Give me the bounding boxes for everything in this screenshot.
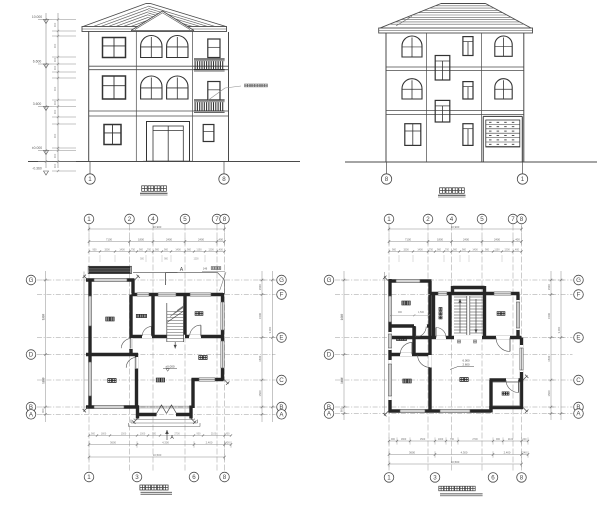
svg-text:C: C xyxy=(576,377,581,384)
svg-text:E: E xyxy=(576,335,580,342)
svg-text:4,300: 4,300 xyxy=(461,450,468,454)
svg-text:3600: 3600 xyxy=(110,440,116,444)
svg-text:900: 900 xyxy=(496,438,501,441)
svg-text:900: 900 xyxy=(453,248,458,251)
svg-text:4,300: 4,300 xyxy=(162,440,169,444)
svg-text:6: 6 xyxy=(491,475,495,482)
svg-text:5: 5 xyxy=(183,216,187,223)
svg-text:1000: 1000 xyxy=(140,432,146,435)
svg-text:1500: 1500 xyxy=(121,432,127,435)
svg-text:C: C xyxy=(279,377,284,384)
svg-text:2.600: 2.600 xyxy=(463,363,470,367)
svg-text:1500: 1500 xyxy=(547,284,551,290)
svg-text:900: 900 xyxy=(164,248,169,251)
svg-text:2: 2 xyxy=(426,216,430,223)
svg-text:F: F xyxy=(577,292,581,299)
svg-text:900: 900 xyxy=(53,163,57,168)
svg-text:A: A xyxy=(180,267,184,273)
svg-text:2100: 2100 xyxy=(211,432,217,435)
svg-text:7100: 7100 xyxy=(106,237,112,241)
svg-text:400: 400 xyxy=(225,440,230,444)
svg-text:1200: 1200 xyxy=(208,248,214,251)
svg-text:1: 1 xyxy=(387,216,391,223)
svg-text:400: 400 xyxy=(219,237,224,241)
svg-text:146: 146 xyxy=(203,267,208,271)
svg-text:D: D xyxy=(327,352,332,359)
svg-text:900: 900 xyxy=(139,248,144,251)
svg-text:8: 8 xyxy=(520,475,524,482)
svg-text:400: 400 xyxy=(226,432,231,435)
svg-text:1800: 1800 xyxy=(138,237,144,241)
svg-text:G: G xyxy=(279,277,284,284)
svg-text:±0.000: ±0.000 xyxy=(165,365,174,369)
svg-text:2400: 2400 xyxy=(463,237,469,241)
svg-text:7: 7 xyxy=(511,216,515,223)
svg-text:2700: 2700 xyxy=(472,438,478,441)
svg-text:900: 900 xyxy=(391,438,396,441)
svg-text:1400: 1400 xyxy=(417,248,423,251)
svg-text:900: 900 xyxy=(187,248,192,251)
svg-text:9,060: 9,060 xyxy=(268,326,272,333)
svg-text:1500: 1500 xyxy=(104,248,110,251)
svg-text:750: 750 xyxy=(131,248,136,251)
svg-text:900: 900 xyxy=(93,248,98,251)
svg-text:900: 900 xyxy=(155,248,160,251)
svg-text:9,060: 9,060 xyxy=(557,326,561,333)
svg-text:1,500: 1,500 xyxy=(418,311,425,314)
svg-text:2400: 2400 xyxy=(198,237,204,241)
svg-text:1: 1 xyxy=(88,176,92,183)
svg-text:E: E xyxy=(279,335,283,342)
svg-text:660: 660 xyxy=(339,407,343,412)
svg-text:700: 700 xyxy=(152,432,157,435)
svg-text:1800: 1800 xyxy=(401,438,407,441)
svg-text:10,900: 10,900 xyxy=(153,225,162,229)
svg-text:3: 3 xyxy=(135,474,139,481)
svg-text:6.600: 6.600 xyxy=(33,60,42,64)
svg-text:1400: 1400 xyxy=(119,248,125,251)
svg-text:D: D xyxy=(29,352,34,359)
svg-text:900: 900 xyxy=(41,408,45,413)
svg-text:10,500: 10,500 xyxy=(153,453,162,457)
svg-text:2,400: 2,400 xyxy=(206,440,213,444)
svg-text:1100: 1100 xyxy=(196,248,202,251)
svg-text:10.000: 10.000 xyxy=(32,15,42,19)
svg-text:700: 700 xyxy=(147,248,152,251)
svg-text:900: 900 xyxy=(485,248,490,251)
svg-text:900: 900 xyxy=(91,432,96,435)
svg-text:2700: 2700 xyxy=(174,432,180,435)
svg-text:900: 900 xyxy=(398,311,403,314)
svg-text:1200: 1200 xyxy=(504,248,510,251)
svg-text:240: 240 xyxy=(522,450,527,454)
svg-text:8: 8 xyxy=(385,176,389,183)
svg-text:900: 900 xyxy=(53,109,57,114)
svg-text:900: 900 xyxy=(437,248,442,251)
svg-text:1500: 1500 xyxy=(258,355,262,361)
svg-text:1400: 1400 xyxy=(175,248,181,251)
svg-text:1000: 1000 xyxy=(438,438,444,441)
svg-text:900: 900 xyxy=(53,100,57,105)
svg-text:700: 700 xyxy=(445,248,450,251)
svg-text:240: 240 xyxy=(523,438,528,441)
svg-text:1: 1 xyxy=(87,474,91,481)
svg-text:1100: 1100 xyxy=(494,248,500,251)
svg-text:5: 5 xyxy=(480,216,484,223)
svg-text:G: G xyxy=(327,277,332,284)
svg-text:900: 900 xyxy=(392,248,397,251)
svg-text:3600: 3600 xyxy=(409,450,415,454)
svg-text:1,800: 1,800 xyxy=(339,377,343,384)
svg-text:900: 900 xyxy=(462,248,467,251)
svg-text:1,800: 1,800 xyxy=(41,377,45,384)
svg-text:1500: 1500 xyxy=(547,355,551,361)
svg-text:900: 900 xyxy=(53,133,57,138)
svg-text:3: 3 xyxy=(433,475,437,482)
svg-text:1: 1 xyxy=(387,475,391,482)
svg-text:G: G xyxy=(29,277,34,284)
svg-text:2400: 2400 xyxy=(166,237,172,241)
svg-text:750: 750 xyxy=(429,248,434,251)
svg-text:1500: 1500 xyxy=(258,313,262,319)
svg-text:900: 900 xyxy=(53,22,57,27)
svg-text:900: 900 xyxy=(53,57,57,62)
svg-text:1800: 1800 xyxy=(101,432,107,435)
svg-text:-0.360: -0.360 xyxy=(32,167,42,171)
svg-text:2400: 2400 xyxy=(494,237,500,241)
svg-text:7100: 7100 xyxy=(405,237,411,241)
svg-text:900: 900 xyxy=(53,65,57,70)
svg-text:4: 4 xyxy=(151,216,155,223)
svg-text:1: 1 xyxy=(87,216,91,223)
svg-text:400: 400 xyxy=(515,237,520,241)
svg-text:1500: 1500 xyxy=(547,313,551,319)
svg-text:8: 8 xyxy=(222,176,226,183)
svg-text:1800: 1800 xyxy=(437,237,443,241)
svg-text:1500: 1500 xyxy=(258,390,262,396)
svg-text:900: 900 xyxy=(53,43,57,48)
svg-text:1400: 1400 xyxy=(472,248,478,251)
svg-text:1500: 1500 xyxy=(420,438,426,441)
svg-text:8: 8 xyxy=(520,216,524,223)
svg-text:900: 900 xyxy=(53,153,57,158)
svg-text:700: 700 xyxy=(450,438,455,441)
svg-text:1500: 1500 xyxy=(258,284,262,290)
svg-text:6: 6 xyxy=(192,474,196,481)
svg-text:900: 900 xyxy=(197,432,202,435)
svg-text:8: 8 xyxy=(223,216,227,223)
svg-text:1: 1 xyxy=(521,176,525,183)
svg-text:F: F xyxy=(280,292,284,299)
svg-text:10,900: 10,900 xyxy=(451,225,460,229)
svg-text:10,500: 10,500 xyxy=(451,460,460,464)
svg-text:1500: 1500 xyxy=(547,390,551,396)
svg-text:7: 7 xyxy=(215,216,219,223)
svg-text:G: G xyxy=(576,277,581,284)
svg-text:4: 4 xyxy=(450,216,454,223)
svg-text:1200: 1200 xyxy=(193,259,199,261)
svg-text:1500: 1500 xyxy=(403,248,409,251)
svg-text:900: 900 xyxy=(53,86,57,91)
svg-text:5,700: 5,700 xyxy=(339,313,343,320)
svg-text:2,400: 2,400 xyxy=(504,450,511,454)
svg-text:400: 400 xyxy=(219,248,224,251)
svg-text:2100: 2100 xyxy=(508,438,514,441)
svg-text:5,700: 5,700 xyxy=(41,313,45,320)
svg-text:±0.000: ±0.000 xyxy=(32,146,42,150)
svg-text:2: 2 xyxy=(128,216,132,223)
svg-text:8: 8 xyxy=(223,474,227,481)
svg-text:400: 400 xyxy=(515,248,520,251)
svg-text:3.600: 3.600 xyxy=(33,102,42,106)
